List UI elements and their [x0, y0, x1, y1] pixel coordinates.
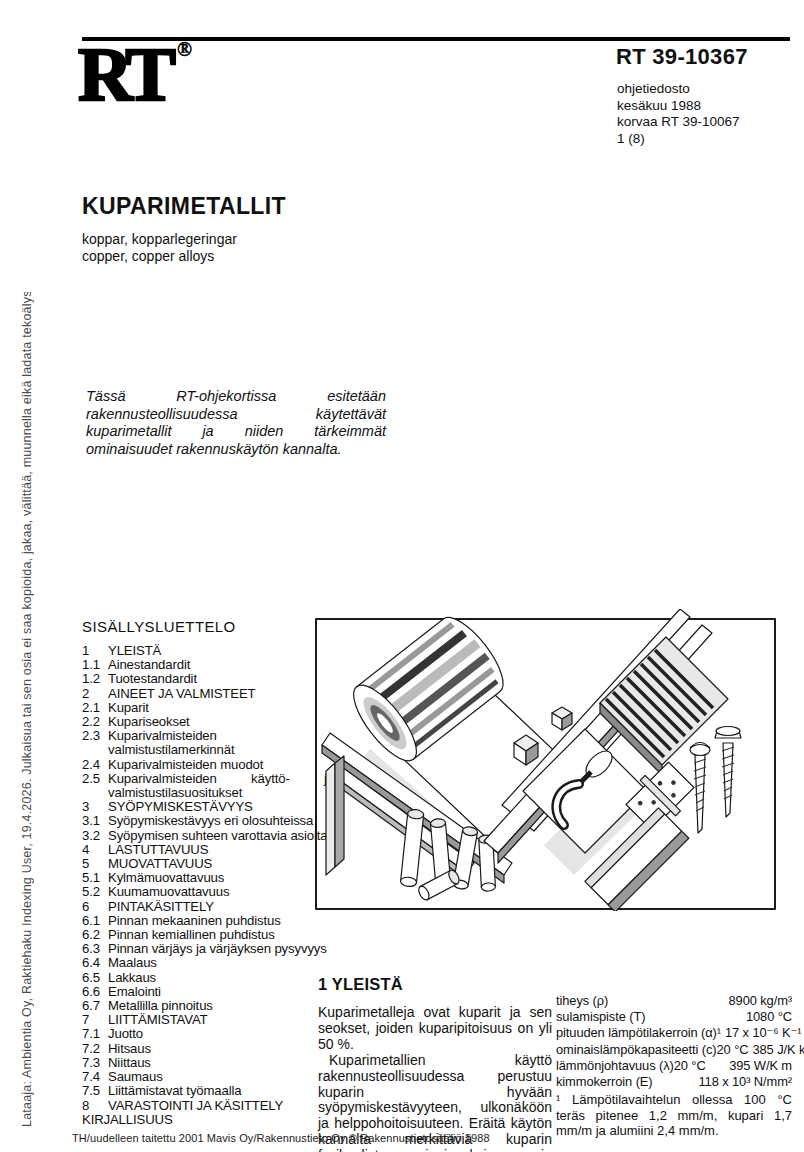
screws	[690, 727, 741, 834]
toc-item-label: Lakkaus	[108, 971, 334, 985]
toc-item-number: 2.3	[82, 729, 108, 757]
toc-item-number: 7.1	[82, 1027, 108, 1041]
table-of-contents: SISÄLLYSLUETTELO 1 YLEISTÄ 1.1 Ainestand…	[82, 618, 334, 1127]
toc-item: 2.3 Kuparivalmisteiden valmistustilamerk…	[82, 729, 334, 757]
toc-item-label: Pinnan värjäys ja värjäyksen pysyvyys	[108, 942, 334, 956]
toc-item-number: 8	[82, 1099, 108, 1113]
toc-item: 7.4 Saumaus	[82, 1070, 334, 1084]
document-meta-line: korvaa RT 39-10067	[617, 114, 740, 131]
toc-item: 5.2 Kuumamuovattavuus	[82, 885, 334, 899]
toc-item-label: Kuparivalmisteiden valmistustilamerkinnä…	[108, 729, 334, 757]
toc-item-number: 1	[82, 644, 108, 658]
property-label: ominaislämpökapasiteetti (c)20 °C	[556, 1042, 748, 1058]
property-label: tiheys (ρ)	[556, 993, 608, 1009]
property-value: 118 x 10³ N/mm²	[698, 1074, 792, 1090]
toc-item-number: 2.5	[82, 772, 108, 800]
toc-item: 2 AINEET JA VALMISTEET	[82, 687, 334, 701]
toc-item: 7.3 Niittaus	[82, 1056, 334, 1070]
section-yleista: 1 YLEISTÄ Kuparimetalleja ovat kuparit j…	[318, 975, 552, 1152]
toc-item-label: Kylmämuovattavuus	[108, 871, 334, 885]
toc-item-number: 6.1	[82, 914, 108, 928]
toc-item-label: VARASTOINTI JA KÄSITTELY	[108, 1099, 334, 1113]
toc-item-number: 2	[82, 687, 108, 701]
toc-item: 6.6 Emalointi	[82, 985, 334, 999]
toc-item-number: 3.2	[82, 829, 108, 843]
property-label: sulamispiste (T)	[556, 1009, 645, 1025]
toc-item: 7.5 Liittämistavat työmaalla	[82, 1084, 334, 1098]
toc-item: 3.2 Syöpymisen suhteen varottavia asioit…	[82, 829, 334, 843]
toc-item-label: YLEISTÄ	[108, 644, 334, 658]
toc-item-label: MUOVATTAVUUS	[108, 857, 334, 871]
toc-item-label: Niittaus	[108, 1056, 334, 1070]
toc-item: 2.5 Kuparivalmisteiden käyttö- ja valmis…	[82, 772, 334, 800]
toc-item-label: Tuotestandardit	[108, 672, 334, 686]
toc-item: 6.5 Lakkaus	[82, 971, 334, 985]
toc-item-label: Saumaus	[108, 1070, 334, 1084]
toc-item: 6.3 Pinnan värjäys ja värjäyksen pysyvyy…	[82, 942, 334, 956]
toc-item-number: 7.4	[82, 1070, 108, 1084]
toc-item-label: SYÖPYMISKESTÄVYYS	[108, 800, 334, 814]
property-row: pituuden lämpötilakerroin (α)¹ 17 x 10⁻⁶…	[556, 1025, 792, 1041]
page-subtitle: koppar, kopparlegeringar copper, copper …	[82, 231, 237, 265]
rt-logo-text: RT	[78, 32, 171, 116]
property-label: lämmönjohtavuus (λ)20 °C	[556, 1058, 706, 1074]
toc-item: 6.4 Maalaus	[82, 956, 334, 970]
toc-item: 6.1 Pinnan mekaaninen puhdistus	[82, 914, 334, 928]
toc-item-label: Metallilla pinnoitus	[108, 999, 334, 1013]
rt-logo: RT®	[78, 36, 186, 112]
toc-item: 5.1 Kylmämuovattavuus	[82, 871, 334, 885]
toc-item-label: Ainestandardit	[108, 658, 334, 672]
toc-item-number: 6.7	[82, 999, 108, 1013]
toc-heading: SISÄLLYSLUETTELO	[82, 618, 334, 635]
toc-item-label: Juotto	[108, 1027, 334, 1041]
toc-item-label: Syöpymiskestävyys eri olosuhteissa	[108, 814, 334, 828]
toc-item-number: 7.5	[82, 1084, 108, 1098]
toc-item-number: 3	[82, 800, 108, 814]
body-paragraph: Kuparimetalleja ovat kuparit ja sen seok…	[318, 1005, 552, 1053]
toc-item-label	[173, 1113, 334, 1127]
toc-item: 3 SYÖPYMISKESTÄVYYS	[82, 800, 334, 814]
toc-item-number: 2.1	[82, 701, 108, 715]
toc-item-number: 6.5	[82, 971, 108, 985]
registered-trademark-icon: ®	[177, 38, 192, 60]
toc-item-label: Pinnan kemiallinen puhdistus	[108, 928, 334, 942]
toc-item-number: 2.4	[82, 758, 108, 772]
section-body: Kuparimetalleja ovat kuparit ja sen seok…	[318, 1005, 552, 1152]
subtitle-english: copper, copper alloys	[82, 248, 237, 265]
property-row: tiheys (ρ) 8900 kg/m³	[556, 993, 792, 1009]
property-label: pituuden lämpötilakerroin (α)¹	[556, 1025, 721, 1041]
toc-item: 6 PINTAKÄSITTELY	[82, 900, 334, 914]
toc-item-label: Liittämistavat työmaalla	[108, 1084, 334, 1098]
toc-item-label: LIITTÄMISTAVAT	[108, 1013, 334, 1027]
intro-abstract: Tässä RT-ohjekortissa esitetään rakennus…	[86, 388, 386, 458]
toc-item-label: AINEET JA VALMISTEET	[108, 687, 334, 701]
toc-item-number: 5	[82, 857, 108, 871]
document-meta-line: 1 (8)	[617, 131, 740, 148]
document-code: RT 39-10367	[616, 44, 748, 70]
toc-item-number: 7.2	[82, 1042, 108, 1056]
toc-item: 1.2 Tuotestandardit	[82, 672, 334, 686]
toc-item: 2.4 Kuparivalmisteiden muodot	[82, 758, 334, 772]
toc-item-label: Kuparivalmisteiden muodot	[108, 758, 334, 772]
physical-properties: tiheys (ρ) 8900 kg/m³ sulamispiste (T) 1…	[556, 993, 792, 1139]
toc-item: 7.2 Hitsaus	[82, 1042, 334, 1056]
property-value: 385 J/K kg	[752, 1042, 804, 1058]
toc-item: 7.1 Juotto	[82, 1027, 334, 1041]
toc-item: 1.1 Ainestandardit	[82, 658, 334, 672]
toc-item: 3.1 Syöpymiskestävyys eri olosuhteissa	[82, 814, 334, 828]
toc-item-label: Emalointi	[108, 985, 334, 999]
document-meta-line: kesäkuu 1988	[617, 98, 740, 115]
toc-item-number: 1.1	[82, 658, 108, 672]
toc-item-label: Kupariseokset	[108, 715, 334, 729]
property-row: kimmokerroin (E) 118 x 10³ N/mm²	[556, 1074, 792, 1090]
toc-item: 2.2 Kupariseokset	[82, 715, 334, 729]
property-value: 395 W/K m	[729, 1058, 792, 1074]
toc-item-number: 7	[82, 1013, 108, 1027]
toc-item-label: Maalaus	[108, 956, 334, 970]
toc-item: 2.1 Kuparit	[82, 701, 334, 715]
toc-item-number: 3.1	[82, 814, 108, 828]
property-label: kimmokerroin (E)	[556, 1074, 653, 1090]
toc-item: KIRJALLISUUS	[82, 1113, 334, 1127]
toc-item: 1 YLEISTÄ	[82, 644, 334, 658]
toc-item-number: 6.6	[82, 985, 108, 999]
finned-block	[600, 637, 728, 775]
toc-item-number: 6.4	[82, 956, 108, 970]
document-meta: ohjetiedostokesäkuu 1988korvaa RT 39-100…	[617, 81, 740, 147]
section-heading: 1 YLEISTÄ	[318, 975, 552, 994]
toc-item-number: KIRJALLISUUS	[82, 1113, 173, 1127]
properties-list: tiheys (ρ) 8900 kg/m³ sulamispiste (T) 1…	[556, 993, 792, 1090]
toc-item-number: 6.2	[82, 928, 108, 942]
property-value: 1080 °C	[746, 1009, 792, 1025]
toc-item: 8 VARASTOINTI JA KÄSITTELY	[82, 1099, 334, 1113]
toc-item-number: 5.1	[82, 871, 108, 885]
toc-item: 7 LIITTÄMISTAVAT	[82, 1013, 334, 1027]
copper-products-illustration	[314, 609, 778, 911]
toc-item-label: PINTAKÄSITTELY	[108, 900, 334, 914]
vertical-copyright-note: Lataaja: Ambientia Oy, Raktiehaku Indexi…	[20, 292, 40, 1127]
toc-item-number: 4	[82, 843, 108, 857]
property-row: sulamispiste (T) 1080 °C	[556, 1009, 792, 1025]
toc-item-label: Pinnan mekaaninen puhdistus	[108, 914, 334, 928]
toc-item-number: 6	[82, 900, 108, 914]
document-meta-line: ohjetiedosto	[617, 81, 740, 98]
toc-item-label: Kuumamuovattavuus	[108, 885, 334, 899]
property-value: 17 x 10⁻⁶ K⁻¹	[725, 1025, 801, 1041]
toc-item-number: 1.2	[82, 672, 108, 686]
toc-item-number: 7.3	[82, 1056, 108, 1070]
toc-item-label: Syöpymisen suhteen varottavia asioita	[108, 829, 334, 843]
properties-footnote: ¹ Lämpötilavaihtelun ollessa 100 °C terä…	[556, 1092, 792, 1139]
toc-item-label: Kuparit	[108, 701, 334, 715]
property-row: lämmönjohtavuus (λ)20 °C 395 W/K m	[556, 1058, 792, 1074]
imprint-line: TH/uudelleen taitettu 2001 Mavis Oy/Rake…	[72, 1132, 490, 1144]
toc-item: 4 LASTUTTAVUUS	[82, 843, 334, 857]
toc-item: 6.7 Metallilla pinnoitus	[82, 999, 334, 1013]
toc-item-label: Hitsaus	[108, 1042, 334, 1056]
toc-item-label: LASTUTTAVUUS	[108, 843, 334, 857]
page-title: KUPARIMETALLIT	[82, 193, 286, 220]
toc-item: 6.2 Pinnan kemiallinen puhdistus	[82, 928, 334, 942]
toc-item-number: 6.3	[82, 942, 108, 956]
toc-item-number: 2.2	[82, 715, 108, 729]
toc-list: 1 YLEISTÄ 1.1 Ainestandardit 1.2 Tuotest…	[82, 644, 334, 1127]
toc-item-label: Kuparivalmisteiden käyttö- ja valmistust…	[108, 772, 334, 800]
toc-item-number: 5.2	[82, 885, 108, 899]
property-value: 8900 kg/m³	[729, 993, 793, 1009]
angle-profile	[326, 763, 335, 875]
toc-item: 5 MUOVATTAVUUS	[82, 857, 334, 871]
subtitle-swedish: koppar, kopparlegeringar	[82, 231, 237, 248]
property-row: ominaislämpökapasiteetti (c)20 °C 385 J/…	[556, 1042, 792, 1058]
